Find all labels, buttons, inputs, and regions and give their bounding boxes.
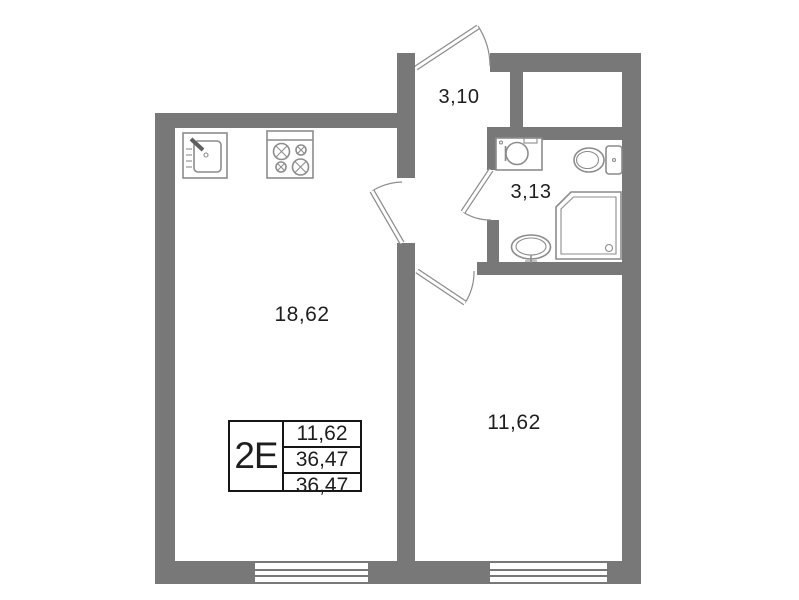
door-leaf-inner <box>372 191 402 243</box>
toilet-icon <box>574 146 622 174</box>
stamp-area-value: 36,47 <box>284 446 360 472</box>
room-area-label-bathroom: 3,13 <box>482 181 580 204</box>
door-leaf-inner <box>416 27 478 68</box>
unit-stamp-values: 11,62 36,47 36,47 <box>284 422 360 490</box>
room-area-label-hallway: 3,10 <box>410 86 508 109</box>
room-area-label-bedroom: 11,62 <box>462 411 566 435</box>
stamp-area-value: 11,62 <box>284 422 360 446</box>
living-room-door <box>372 182 402 243</box>
floor-plan: 18,62 3,10 3,13 11,62 2E 11,62 36,47 36,… <box>0 0 799 600</box>
bedroom-door <box>417 271 474 303</box>
door-leaf-inner <box>417 271 465 303</box>
room-area-label-living: 18,62 <box>250 303 354 327</box>
door-swing-arc <box>478 26 490 66</box>
door-swing-arc <box>463 212 491 220</box>
door-swing-arc <box>465 271 474 303</box>
stamp-area-value: 36,47 <box>284 472 360 498</box>
stove-icon <box>267 131 313 178</box>
washbasin-icon <box>512 235 551 263</box>
washing-machine-icon <box>496 138 542 170</box>
entry-door <box>416 26 490 68</box>
plan-vector-layer <box>0 0 799 600</box>
door-swing-arc <box>372 182 402 191</box>
unit-stamp-table: 2E 11,62 36,47 36,47 <box>228 420 362 492</box>
unit-type-label: 2E <box>230 422 284 490</box>
kitchen-sink-icon <box>183 133 227 178</box>
